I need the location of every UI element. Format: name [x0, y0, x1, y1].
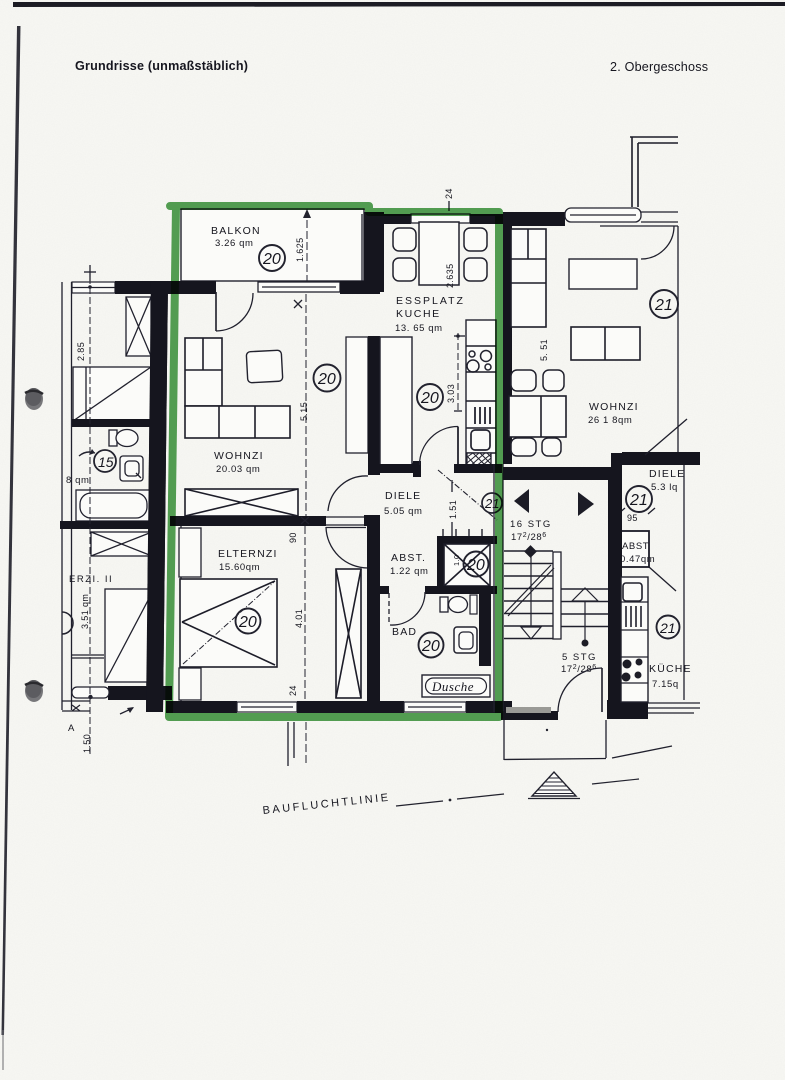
svg-text:20: 20: [238, 614, 257, 631]
svg-text:26 1 8qm: 26 1 8qm: [588, 415, 632, 426]
svg-text:5. 51: 5. 51: [539, 339, 549, 361]
svg-text:A: A: [68, 723, 75, 734]
svg-text:ESSPLATZ: ESSPLATZ: [396, 295, 465, 307]
svg-text:15: 15: [98, 454, 114, 470]
svg-text:1.22 qm: 1.22 qm: [390, 566, 429, 577]
svg-text:0.47qm: 0.47qm: [620, 554, 655, 565]
svg-text:172/286: 172/286: [511, 532, 547, 543]
svg-text:1.0: 1.0: [452, 554, 461, 566]
svg-text:ABST: ABST: [622, 541, 649, 552]
svg-text:20: 20: [262, 251, 281, 268]
svg-text:5.15: 5.15: [299, 402, 309, 421]
svg-text:16 STG: 16 STG: [510, 519, 552, 530]
svg-text:15.60qm: 15.60qm: [219, 562, 260, 573]
svg-text:1.625: 1.625: [295, 237, 305, 262]
svg-text:WOHNZI: WOHNZI: [214, 450, 264, 462]
svg-text:20: 20: [317, 371, 336, 388]
svg-text:4.01: 4.01: [294, 609, 304, 628]
svg-text:DIELE: DIELE: [649, 468, 685, 480]
svg-text:20: 20: [421, 638, 440, 655]
svg-text:KÜCHE: KÜCHE: [649, 663, 692, 675]
svg-text:Grundrisse (unmaßstäblich): Grundrisse (unmaßstäblich): [75, 59, 248, 73]
svg-text:BALKON: BALKON: [211, 225, 261, 237]
svg-text:13. 65 qm: 13. 65 qm: [395, 323, 443, 334]
svg-text:21: 21: [629, 492, 648, 509]
svg-text:5.3 lq: 5.3 lq: [651, 482, 678, 493]
svg-text:2.635: 2.635: [445, 263, 455, 288]
svg-text:ELTERNZI: ELTERNZI: [218, 548, 278, 560]
svg-text:7.15q: 7.15q: [652, 679, 679, 690]
svg-text:DIELE: DIELE: [385, 490, 421, 502]
svg-text:1.50: 1.50: [82, 734, 92, 753]
svg-text:Dusche: Dusche: [431, 679, 474, 694]
svg-text:21: 21: [659, 620, 676, 636]
svg-text:2. Obergeschoss: 2. Obergeschoss: [610, 60, 708, 74]
svg-text:KUCHE: KUCHE: [396, 308, 441, 320]
svg-text:ABST.: ABST.: [391, 552, 426, 564]
svg-text:ERZI. II: ERZI. II: [69, 574, 113, 585]
svg-text:95: 95: [627, 513, 638, 523]
svg-text:3.03: 3.03: [446, 384, 456, 403]
svg-text:3.26 qm: 3.26 qm: [215, 238, 254, 249]
svg-text:20.03 qm: 20.03 qm: [216, 464, 260, 475]
svg-text:2.85: 2.85: [76, 342, 86, 361]
svg-text:8 qm: 8 qm: [66, 475, 90, 486]
svg-text:21: 21: [654, 297, 673, 314]
svg-text:90: 90: [288, 532, 298, 543]
svg-text:3.51 qm: 3.51 qm: [80, 594, 90, 629]
svg-text:20: 20: [420, 390, 439, 407]
svg-text:1.51: 1.51: [448, 500, 458, 519]
svg-text:5 STG: 5 STG: [562, 652, 597, 663]
svg-text:20: 20: [466, 557, 485, 574]
svg-text:24: 24: [444, 188, 454, 199]
svg-text:WOHNZI: WOHNZI: [589, 401, 639, 413]
svg-text:24: 24: [288, 685, 298, 696]
svg-text:BAD: BAD: [392, 626, 417, 638]
svg-text:5.05 qm: 5.05 qm: [384, 506, 423, 517]
